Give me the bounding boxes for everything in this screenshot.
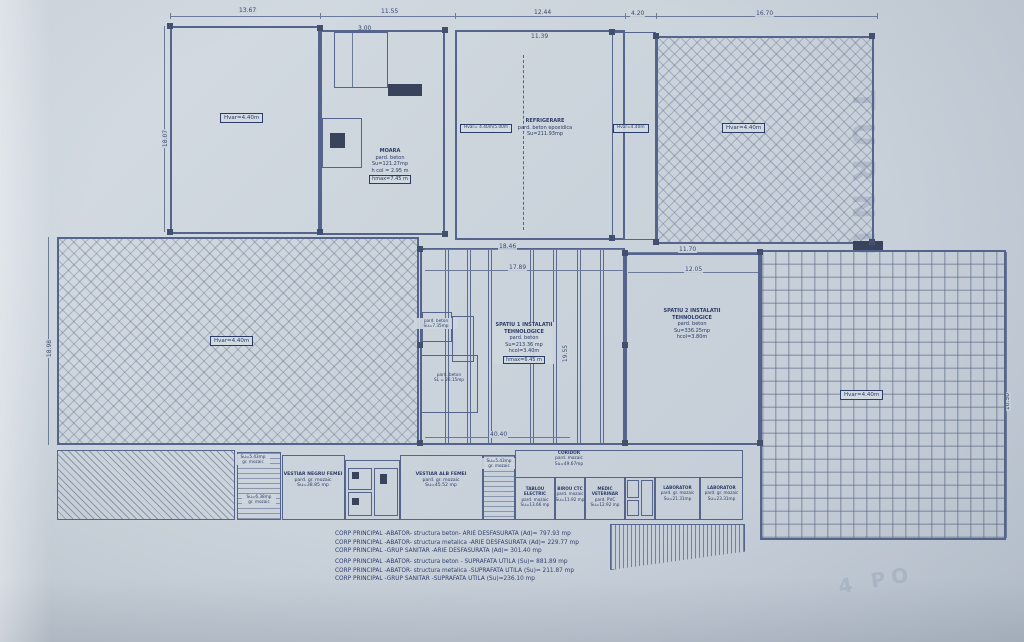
room-area: Su=211.93mp <box>505 131 585 138</box>
column <box>609 29 615 35</box>
room-birou-label: BIROU CTC pard. mozaic Su=11.92 mp <box>555 486 585 502</box>
column <box>653 239 659 245</box>
room-area: Su=11.92 mp <box>555 497 585 502</box>
column <box>317 25 323 31</box>
stair-floor: gr. mozaic <box>242 499 276 504</box>
room-area: Su=45.52 mp <box>406 483 476 489</box>
dimension-line <box>425 249 623 250</box>
dim-label: 12.44 <box>533 9 552 16</box>
fixture <box>380 474 387 484</box>
column <box>317 229 323 235</box>
rail <box>445 250 449 443</box>
room-tablou-label: TABLOU ELECTRIC pard. mozaic Su=13.66 mp <box>516 486 554 507</box>
platform-right-label: Hvar=4.40m <box>840 390 883 400</box>
room-name: MEDIC VETERINAR <box>586 486 624 497</box>
small-room-b <box>420 355 478 413</box>
room-height: hcol=3.40m <box>493 348 555 355</box>
wc-cell <box>627 480 639 498</box>
moara-annex-room <box>334 32 388 88</box>
room-coridor-label: CORIDOR pard. mozaic Su=49.67mp <box>536 451 602 467</box>
room-floor: pard. mozaic <box>516 497 554 502</box>
column <box>653 33 659 39</box>
room-area: Su=49.67mp <box>536 462 602 467</box>
column <box>167 23 173 29</box>
room-spatiu2-label: SPATIU 2 INSTALATII TEHNOLOGICE pard. be… <box>652 308 732 341</box>
column <box>869 33 875 39</box>
room-name: SPATIU 2 INSTALATII <box>652 308 732 315</box>
dim-tick <box>170 13 171 19</box>
room-name: VESTIAR ALB FEMEI <box>406 472 476 478</box>
platform-top-right-label: Hvar=4.40m <box>722 123 765 133</box>
column <box>442 27 448 33</box>
column <box>757 440 763 446</box>
bottom-left-ramp <box>57 450 235 520</box>
dim-tick <box>625 13 626 19</box>
room-moara-label: MOARA pard. beton Su=121.27mp h col = 2.… <box>358 148 422 184</box>
room-area: Su=12.92 mp <box>586 502 624 507</box>
dim-label: 11.70 <box>678 246 697 253</box>
dim-label: 18.46 <box>498 243 517 250</box>
canopy-hatch <box>610 524 745 570</box>
dim-label: 11.55 <box>380 8 399 15</box>
stairs-left-label: Su=5.43mp gr. mozaic <box>236 454 270 465</box>
rail <box>577 250 581 443</box>
watermark-text-2: 4 PO <box>836 562 916 599</box>
dim-label: 17.89 <box>508 264 527 271</box>
column <box>609 235 615 241</box>
dim-label: 19.55 <box>562 344 569 363</box>
dim-tick <box>455 13 456 19</box>
room-area: Su=38.85 mp <box>280 483 346 489</box>
dim-label: 18.07 <box>162 129 169 148</box>
room-floor: pard. gr. mozaic <box>656 490 699 495</box>
column <box>622 440 628 446</box>
stair-floor: gr. mozaic <box>236 459 270 464</box>
dim-label: 16.70 <box>755 10 774 17</box>
column <box>417 246 423 252</box>
dim-tick <box>656 13 657 19</box>
moara-annex-divider <box>352 33 353 87</box>
legend-line: CORP PRINCIPAL -ABATOR- structura metali… <box>335 540 579 547</box>
room-name: SPATIU 1 INSTALATII <box>493 322 555 329</box>
room-name: VESTIAR NEGRU FEMEI <box>280 472 346 478</box>
room-hmax-badge: hmax=6.45 m <box>503 356 545 365</box>
dim-label: 12.05 <box>684 266 703 273</box>
dim-label: 4.20 <box>630 10 645 17</box>
room-area: SL = 26.15mp <box>424 377 474 382</box>
room-refrigerare-label: REFRIGERARE pard. beton epoxidica Su=211… <box>505 118 585 138</box>
room-spatiu1-label: SPATIU 1 INSTALATII TEHNOLOGICE pard. be… <box>493 322 555 364</box>
wc-cell <box>641 480 653 516</box>
column <box>869 239 875 245</box>
room-laborator-1-label: LABORATOR pard. gr. mozaic Su=21.31mp <box>656 485 699 501</box>
platform-top-right <box>656 36 874 244</box>
legend-line: CORP PRINCIPAL -ABATOR- structura beton … <box>335 559 579 566</box>
room-hall-top-left <box>170 26 320 234</box>
room-hall-top-left-label: Hvar=4.40m <box>220 113 263 123</box>
rail <box>600 250 604 443</box>
dim-tick <box>877 13 878 19</box>
stairs-left-label-2: Su=6.38mp gr. mozaic <box>242 494 276 505</box>
column <box>417 440 423 446</box>
column <box>417 342 423 348</box>
moara-equipment-block <box>388 84 422 96</box>
dim-label: 13.67 <box>238 7 257 14</box>
strip-hvar-badge: Hvar=4.40m <box>613 124 649 133</box>
room-strip <box>612 32 656 240</box>
room-hmax-badge: hmax=7.45 m <box>369 175 411 184</box>
fixture <box>352 472 359 479</box>
dim-label: 18.98 <box>46 339 53 358</box>
room-vestiar-negru-label: VESTIAR NEGRU FEMEI pard. gr. mozaic Su=… <box>280 472 346 489</box>
room-vestiar-alb-label: VESTIAR ALB FEMEI pard. gr. mozaic Su=45… <box>406 472 476 489</box>
room-laborator-2-label: LABORATOR pard. gr. mozaic Su=23.31mp <box>701 485 742 501</box>
column <box>167 229 173 235</box>
dim-label: 40.40 <box>489 431 508 438</box>
legend-line: CORP PRINCIPAL -ABATOR- structura beton-… <box>335 531 579 538</box>
room-floor: pard. mozaic <box>555 491 585 496</box>
column <box>757 249 763 255</box>
room-floor: pard. gr. mozaic <box>701 490 742 495</box>
legend-line: CORP PRINCIPAL -GRUP SANITAR -ARIE DESFA… <box>335 548 579 555</box>
dim-tick <box>320 13 321 19</box>
column <box>622 342 628 348</box>
room-area: Su=13.66 mp <box>516 502 554 507</box>
platform-right-marker <box>853 241 883 250</box>
moara-silo-block <box>330 133 345 148</box>
room-medic-label: MEDIC VETERINAR pard. PVC Su=12.92 mp <box>586 486 624 507</box>
room-name: TABLOU ELECTRIC <box>516 486 554 497</box>
room-height: hcol=3.80m <box>652 334 732 341</box>
legend-line: CORP PRINCIPAL -GRUP SANITAR -SUPRAFATA … <box>335 576 579 583</box>
legend-line: CORP PRINCIPAL -ABATOR- structura metali… <box>335 568 579 575</box>
rail <box>488 250 492 443</box>
column <box>442 231 448 237</box>
legend-block: CORP PRINCIPAL -ABATOR- structura beton-… <box>335 531 579 585</box>
room-height: h col = 2.95 m <box>358 168 422 175</box>
column <box>622 250 628 256</box>
stair-floor: gr. mozaic <box>482 463 516 468</box>
room-area: Su=23.31mp <box>701 496 742 501</box>
room-area: Su=21.31mp <box>656 496 699 501</box>
refrigerare-centerline <box>523 55 524 230</box>
small-room-b-label: pard. beton SL = 26.15mp <box>424 372 474 383</box>
stairs-middle-label: Su=5.43mp gr. mozaic <box>482 458 516 469</box>
wc-cell <box>627 500 639 516</box>
platform-left-label: Hvar=4.40m <box>210 336 253 346</box>
room-spatiu2 <box>625 253 760 445</box>
fixture <box>352 498 359 505</box>
floor-plan-sheet: TURNU 4 PO 13.67 11.55 12.44 4.20 16.70 … <box>0 0 1024 642</box>
